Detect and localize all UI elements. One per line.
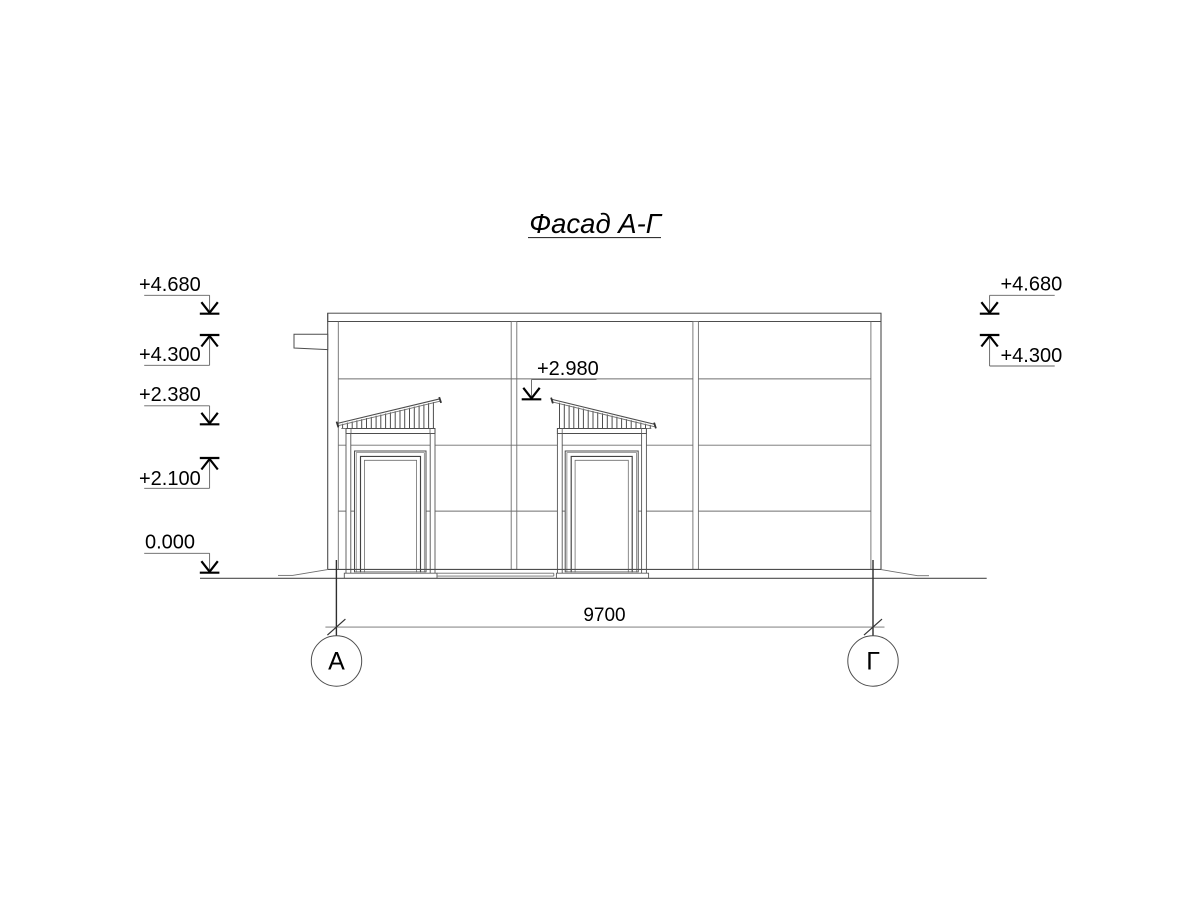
svg-text:9700: 9700 bbox=[583, 605, 625, 626]
svg-text:+2.980: +2.980 bbox=[537, 358, 599, 380]
svg-text:0.000: 0.000 bbox=[145, 532, 195, 554]
svg-text:+4.300: +4.300 bbox=[139, 344, 201, 366]
svg-text:+4.680: +4.680 bbox=[139, 274, 201, 296]
svg-text:Г: Г bbox=[866, 648, 880, 676]
svg-text:+2.100: +2.100 bbox=[139, 468, 201, 490]
svg-text:А: А bbox=[328, 648, 345, 676]
svg-text:+2.380: +2.380 bbox=[139, 384, 201, 406]
svg-text:+4.300: +4.300 bbox=[1001, 345, 1063, 367]
svg-text:Фасад А-Г: Фасад А-Г bbox=[529, 208, 663, 239]
svg-text:+4.680: +4.680 bbox=[1001, 274, 1063, 296]
